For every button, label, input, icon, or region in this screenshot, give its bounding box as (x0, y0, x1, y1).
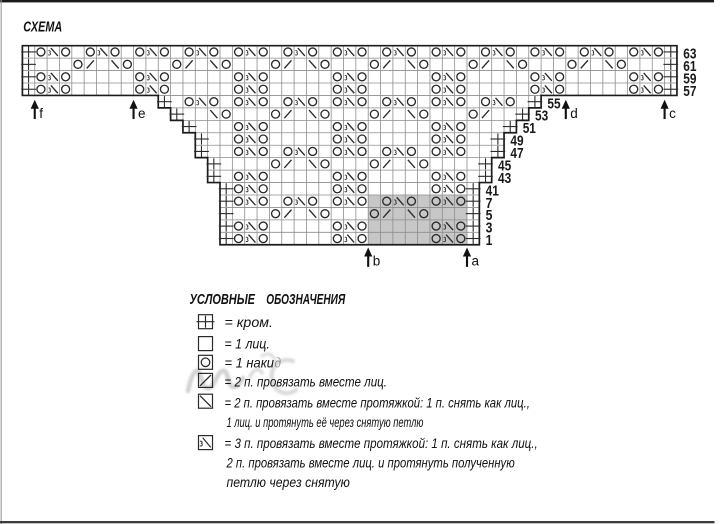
svg-text:d: d (570, 106, 578, 121)
svg-text:e: e (138, 106, 146, 121)
svg-text:a: a (472, 254, 480, 269)
svg-text:д: д (275, 356, 282, 371)
svg-text:УСЛОВНЫЕ: УСЛОВНЫЕ (190, 292, 256, 308)
svg-text:55: 55 (547, 96, 560, 112)
svg-text:c: c (669, 106, 676, 121)
svg-text:2 п. провязать вместе лиц. и п: 2 п. провязать вместе лиц. и протянуть п… (226, 456, 515, 471)
svg-text:1: 1 (486, 233, 493, 249)
svg-text:57: 57 (683, 84, 696, 100)
svg-text:= 1 лиц.: = 1 лиц. (225, 337, 270, 352)
svg-text:53: 53 (535, 109, 548, 125)
svg-text:43: 43 (498, 171, 511, 187)
svg-text:47: 47 (510, 146, 523, 162)
svg-text:= 1 наки: = 1 наки (225, 356, 275, 371)
svg-text:= 2 п. провязать вместе лиц.: = 2 п. провязать вместе лиц. (225, 375, 388, 390)
svg-text:b: b (373, 254, 381, 269)
svg-text:1 лиц. и протянуть её через сн: 1 лиц. и протянуть её через снятую петлю (227, 415, 424, 430)
svg-text:ОБОЗНАЧЕНИЯ: ОБОЗНАЧЕНИЯ (266, 292, 345, 308)
svg-text:= 3 п. провязать вместе протяж: = 3 п. провязать вместе протяжкой: 1 п. … (225, 436, 538, 451)
svg-text:f: f (39, 106, 43, 121)
svg-text:СХЕМА: СХЕМА (23, 20, 62, 36)
svg-text:петлю через снятую: петлю через снятую (227, 475, 350, 490)
svg-text:51: 51 (523, 121, 536, 137)
svg-text:= 2 п. провязать вместе протяж: = 2 п. провязать вместе протяжкой: 1 п. … (225, 396, 530, 411)
svg-text:= кром.: = кром. (225, 315, 273, 330)
